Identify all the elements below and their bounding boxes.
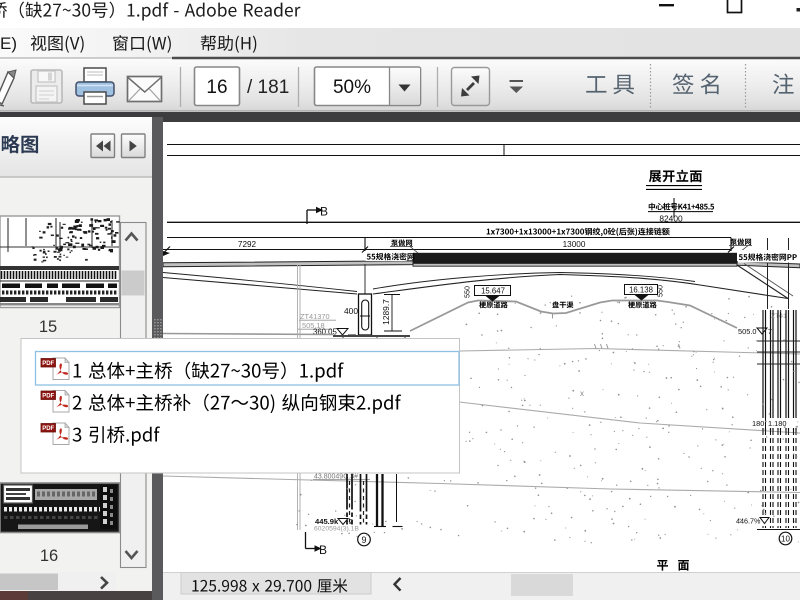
svg-text:PDF: PDF [42, 426, 54, 432]
svg-text:16: 16 [40, 547, 58, 565]
svg-text:50%: 50% [333, 77, 371, 98]
svg-text:7292: 7292 [238, 240, 257, 249]
svg-text:B: B [319, 543, 327, 557]
svg-text:400: 400 [344, 306, 358, 316]
svg-text:180: 180 [752, 419, 764, 428]
svg-text:1.180: 1.180 [768, 419, 787, 428]
svg-text:B: B [320, 205, 328, 219]
svg-text:550: 550 [463, 286, 472, 298]
svg-text:6020594(3).1B: 6020594(3).1B [314, 526, 359, 533]
svg-text:446.7%: 446.7% [736, 517, 761, 526]
svg-text:x: x [580, 389, 584, 398]
svg-text:PDF: PDF [42, 394, 54, 400]
svg-text:/ 181: / 181 [247, 77, 289, 98]
svg-text:16.138: 16.138 [629, 286, 653, 295]
svg-text:PDF: PDF [42, 361, 54, 367]
svg-text:16: 16 [206, 77, 227, 98]
svg-text:9: 9 [361, 535, 366, 545]
svg-text:550: 550 [656, 285, 665, 297]
svg-text:15.647: 15.647 [481, 287, 505, 296]
svg-text:E): E) [0, 34, 17, 53]
svg-text:ZT41370: ZT41370 [300, 312, 330, 321]
svg-text:505.0: 505.0 [738, 327, 757, 336]
svg-text:13000: 13000 [563, 240, 586, 249]
svg-text:10: 10 [781, 535, 790, 544]
svg-text:15: 15 [39, 318, 57, 336]
svg-text:1289.7: 1289.7 [381, 299, 391, 325]
